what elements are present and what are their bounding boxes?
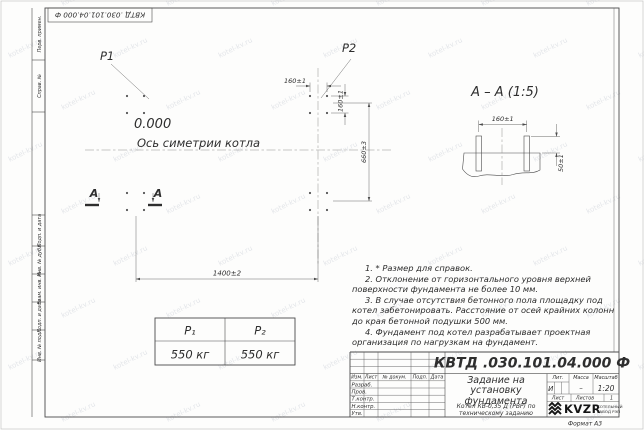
- note-2: 2. Отклонение от горизонтального уровня …: [352, 274, 616, 294]
- mass-label: Масса: [573, 375, 589, 381]
- rev-header-izm: Изм.: [351, 375, 363, 381]
- dim-bolt-protrusion: 50±1: [531, 124, 565, 172]
- left-margin-column: Перв. примен. Справ. № Подп. и дата Инв.…: [32, 8, 45, 417]
- scale-value: 1:20: [598, 384, 615, 393]
- notes-block: 1. * Размер для справок. 2. Отклонение о…: [352, 263, 616, 348]
- kvzr-logo-text: KVZR: [564, 402, 601, 416]
- dim-width: 1400±2: [136, 216, 318, 282]
- margin-field-podp-data-2: Подп. и дата: [37, 299, 43, 332]
- lit-label: Лит.: [551, 375, 563, 381]
- sign-row-razrab: Разраб.: [352, 382, 373, 388]
- sheet-label: Лист: [551, 396, 565, 402]
- margin-field-inv-podl: Инв. № подл.: [37, 328, 43, 362]
- sign-row-tkontr: Т.контр.: [352, 397, 375, 403]
- section-mark-a2: А: [153, 187, 163, 200]
- section-cut-marks: А А: [85, 187, 162, 205]
- note-3: 3. В случае отсутствия бетонного пола пл…: [352, 295, 616, 325]
- dim-section-bolt-spacing: 160±1: [479, 115, 527, 132]
- rev-header-dokum: № докум.: [381, 375, 406, 381]
- dim-160-v-label: 160±1: [337, 90, 345, 112]
- rev-header-podp: Подп.: [413, 375, 428, 381]
- anchor-bolt-left: [476, 136, 482, 171]
- dim-section-160-label: 160±1: [492, 115, 514, 123]
- dim-depth: 660±3: [333, 103, 372, 201]
- boiler-axis-label: Ось симетрии котла: [137, 136, 260, 150]
- dim-bolt-spacing-vertical: 160±1: [331, 84, 349, 125]
- load-point-p1-label: P1: [100, 49, 114, 63]
- elevation-mark: 0.000: [134, 117, 171, 132]
- note-1: 1. * Размер для справок.: [352, 263, 616, 273]
- sign-row-utv: Утв.: [352, 411, 363, 417]
- load-table: P₁ P₂ 550 кг 550 кг: [155, 318, 295, 365]
- load-table-value-p2: 550 кг: [241, 348, 281, 362]
- stamp-doc-number: КВТД .030.101.04.000 Ф: [55, 10, 145, 19]
- title-block-doc-number: КВТД .030.101.04.000 Ф: [434, 356, 630, 372]
- margin-field-perv-primen: Перв. примен.: [37, 16, 43, 53]
- sheets-value: 1: [610, 396, 613, 402]
- dim-1400-label: 1400±2: [213, 270, 242, 278]
- load-table-header-p2: P₂: [254, 324, 266, 338]
- dim-160-h-label: 160±1: [284, 77, 306, 85]
- company-name-line2: ЗАВОД РЭП: [597, 409, 620, 414]
- drawing-subtitle: Котел КВ-0,35 Д (РВР) по техническому за…: [446, 403, 546, 417]
- mass-value: –: [579, 385, 583, 393]
- anchor-bolt-right: [524, 136, 530, 171]
- drawing-canvas: Перв. примен. Справ. № Подп. и дата Инв.…: [0, 0, 644, 430]
- lit-value: И: [548, 385, 554, 393]
- rev-header-data: Дата: [430, 375, 444, 381]
- kvzr-logo-icon: [549, 403, 561, 414]
- note-4: 4. Фундамент под котел разрабатывает про…: [352, 327, 616, 347]
- format-label: Формат А3: [568, 421, 602, 428]
- section-mark-a1: А: [89, 187, 99, 200]
- dim-bolt-spacing-horizontal: 160±1: [284, 77, 341, 92]
- sheets-label: Листов: [575, 396, 594, 402]
- sign-row-prov: Пров.: [352, 390, 367, 396]
- scale-label: Масштаб: [594, 375, 617, 381]
- load-point-p2-label: P2: [342, 41, 356, 55]
- drawing-sheet: kotel-kv.rukotel-kv.rukotel-kv.rukotel-k…: [0, 0, 644, 430]
- foundation-concrete-block: [463, 153, 541, 177]
- section-title: А – А (1:5): [470, 85, 539, 100]
- rotated-doc-stamp: КВТД .030.101.04.000 Ф: [48, 8, 152, 22]
- margin-field-podp-data-1: Подп. и дата: [37, 214, 43, 247]
- dim-50-label: 50±1: [557, 154, 565, 172]
- dim-660-label: 660±3: [360, 141, 368, 163]
- load-table-header-p1: P₁: [184, 324, 196, 338]
- load-table-value-p1: 550 кг: [171, 348, 211, 362]
- plan-view: P1 P2 160±1 160±1: [85, 41, 392, 282]
- section-view: А – А (1:5) 160±1 50±1: [463, 85, 566, 185]
- margin-field-sprav-n: Справ. №: [37, 74, 43, 98]
- rev-header-list: Лист: [364, 375, 378, 381]
- sign-row-nkontr: Н.контр.: [352, 404, 376, 410]
